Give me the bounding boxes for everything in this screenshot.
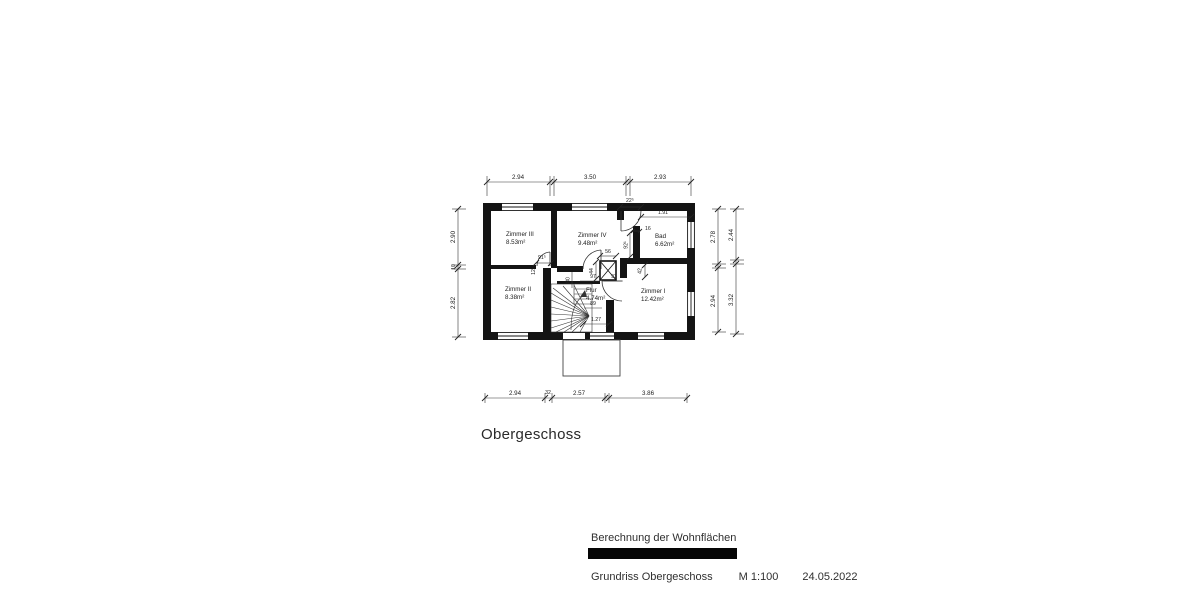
title-block: Berechnung der Wohnflächen Grundriss Obe…: [588, 532, 848, 583]
room-name: Zimmer I: [641, 288, 666, 295]
room-area: 6.62m²: [655, 241, 674, 248]
room-label-zimmer3: Zimmer III 8.53m²: [506, 231, 534, 246]
redacted-bar: [588, 548, 737, 559]
dim-left-2: 10: [451, 264, 457, 270]
drawing-date: 24.05.2022: [802, 571, 857, 583]
drawing-scale: M 1:100: [739, 571, 779, 583]
dim-top-2: 3.50: [584, 174, 597, 181]
room-area: 12.42m²: [641, 296, 664, 303]
dim-step: 42: [638, 268, 644, 274]
window-icon: [590, 332, 614, 340]
room-area: 8.53m²: [506, 239, 525, 246]
dim-bad-door: 22⁵: [626, 198, 634, 204]
dim-chain-bottom: 2.94 32 2.57 3.86: [482, 390, 690, 403]
dim-door-sill: 12: [531, 269, 537, 275]
room-name: Zimmer III: [506, 231, 534, 238]
drawing-label: Grundriss Obergeschoss: [591, 571, 713, 583]
dim-top-3: 2.93: [654, 174, 667, 181]
room-label-flur: Flur 4.74m²: [586, 287, 605, 302]
dim-vestibule-left: 97: [590, 274, 596, 280]
room-label-zimmer2: Zimmer II 8.38m²: [505, 286, 531, 301]
scanned-floorplan-page: Zimmer III 8.53m² Zimmer IV 9.48m² Bad 6…: [0, 0, 1200, 600]
room-area: 8.38m²: [505, 294, 524, 301]
floor-title: Obergeschoss: [481, 426, 581, 443]
calculation-label: Berechnung der Wohnflächen: [591, 532, 848, 544]
room-area: 9.48m²: [578, 240, 597, 247]
room-label-bad: Bad 6.62m²: [655, 233, 674, 248]
dim-bad-width: 1.91: [658, 210, 668, 216]
dim-bad-wall: 16: [645, 226, 651, 232]
room-name: Zimmer IV: [578, 232, 607, 239]
room-name: Bad: [655, 233, 667, 240]
balcony-outline: [563, 340, 620, 376]
window-icon: [638, 332, 664, 340]
dim-bottom-3: 2.57: [573, 390, 586, 397]
dim-right-outer-1: 2.44: [728, 228, 735, 241]
dim-right-outer-2: 3.32: [728, 293, 735, 306]
dim-bottom-1: 2.94: [509, 390, 522, 397]
dim-bottom-4: 3.86: [642, 390, 655, 397]
dim-bottom-2: 32: [545, 390, 551, 396]
dim-flur-length: 1.27: [591, 317, 601, 323]
dim-top-1: 2.94: [512, 174, 525, 181]
room-label-zimmer1: Zimmer I 12.42m²: [641, 288, 666, 303]
dim-shaft-depth: 44: [589, 268, 595, 274]
dim-shaft-width: 56: [605, 249, 611, 255]
dim-flur-width: 89: [590, 301, 596, 307]
dim-chain-right-outer: 2.44 3.32: [728, 206, 744, 337]
dim-bad-depth: 92¹: [624, 241, 630, 249]
room-name: Flur: [586, 287, 597, 294]
room-label-zimmer4: Zimmer IV 9.48m²: [578, 232, 607, 247]
dim-chain-right-inner: 2.78 2.94: [710, 206, 726, 335]
dim-chain-top: 2.94 3.50 2.93: [484, 174, 694, 196]
dim-chain-left: 2.90 10 2.82: [450, 206, 466, 340]
balcony-door-icon: [563, 332, 585, 340]
dim-door-zimmer3: 91⁵: [538, 255, 546, 261]
window-icon: [498, 332, 528, 340]
window-icon: [502, 203, 533, 211]
dim-right-inner-1: 2.78: [710, 230, 717, 243]
dim-left-1: 2.90: [450, 230, 457, 243]
window-icon: [572, 203, 607, 211]
dim-right-inner-2: 2.94: [710, 294, 717, 307]
floorplan-drawing: Zimmer III 8.53m² Zimmer IV 9.48m² Bad 6…: [0, 0, 1200, 600]
dim-flur-side: 80: [566, 277, 572, 283]
window-icon: [687, 222, 695, 248]
window-icon: [687, 292, 695, 316]
dim-left-3: 2.82: [450, 296, 457, 309]
room-name: Zimmer II: [505, 286, 531, 293]
drawing-info-row: Grundriss ObergeschossM 1:10024.05.2022: [591, 571, 848, 583]
dim-vestibule-right: 93: [611, 274, 617, 280]
